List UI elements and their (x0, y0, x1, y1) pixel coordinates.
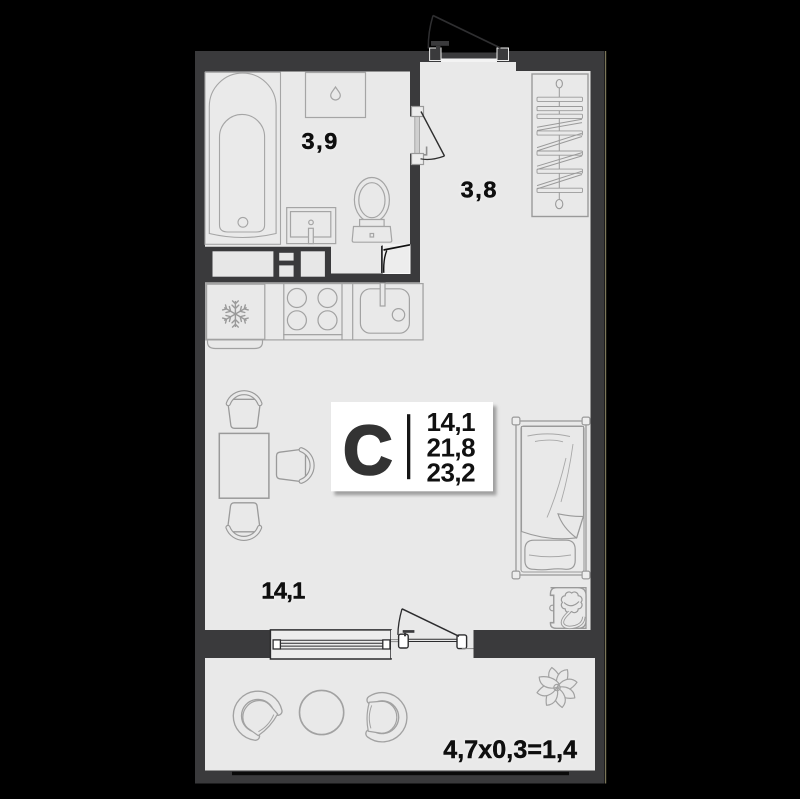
svg-text:3,8: 3,8 (461, 177, 498, 203)
svg-text:23,2: 23,2 (427, 457, 476, 487)
svg-text:3,9: 3,9 (301, 128, 338, 154)
svg-text:C: C (343, 412, 392, 489)
svg-text:14,1: 14,1 (261, 578, 305, 604)
svg-text:4,7x0,3=1,4: 4,7x0,3=1,4 (443, 736, 577, 764)
